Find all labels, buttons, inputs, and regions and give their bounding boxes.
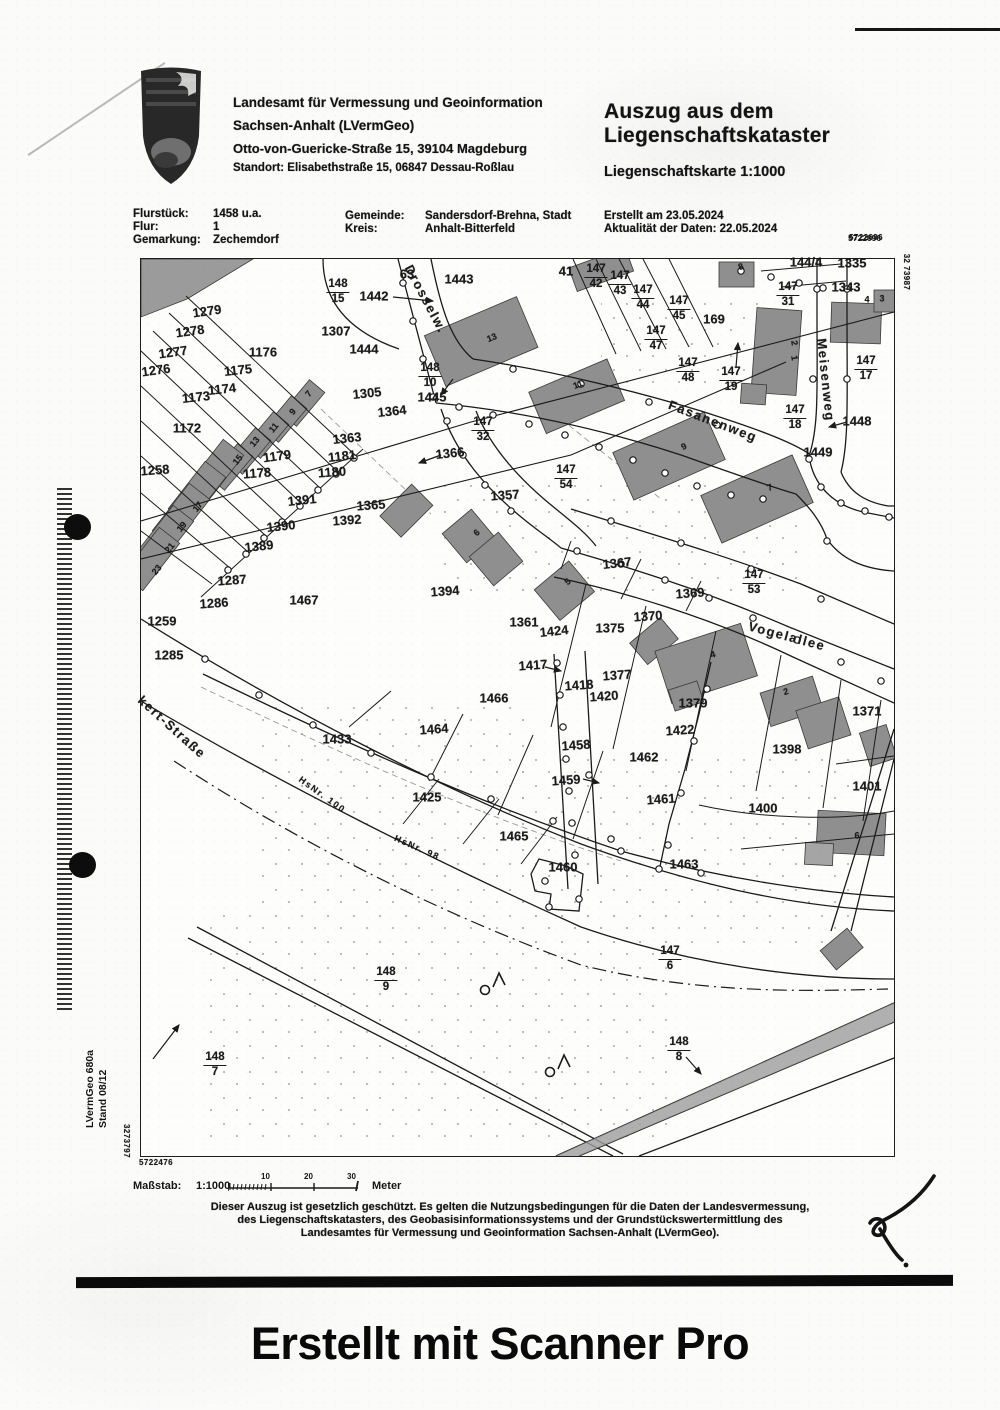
grid-coordinate-label: 32 73987 bbox=[902, 254, 910, 291]
document-subtitle: Liegenschaftskarte 1:1000 bbox=[604, 164, 830, 180]
flurstueck-label: Flurstück: bbox=[133, 208, 213, 221]
punch-hole bbox=[69, 852, 96, 878]
kreis-value: Anhalt-Bitterfeld bbox=[425, 223, 515, 236]
scanner-caption: Erstellt mit Scanner Pro bbox=[0, 1318, 1000, 1370]
scanned-document-page: Landesamt für Vermessung und Geoinformat… bbox=[0, 0, 1000, 1410]
gemeinde-value: Sandersdorf-Brehna, Stadt bbox=[425, 210, 571, 223]
massstab-label: Maßstab: bbox=[133, 1180, 181, 1192]
legal-line1: Dieser Auszug ist gesetzlich geschützt. … bbox=[205, 1201, 815, 1214]
gemarkung-value: Zechemdorf bbox=[213, 234, 279, 247]
legal-line2: des Liegenschaftskatasters, des Geobasis… bbox=[205, 1214, 815, 1227]
cadastral-map bbox=[140, 258, 895, 1157]
coat-of-arms-icon bbox=[138, 64, 204, 190]
scale-bar: 10 20 30 bbox=[228, 1172, 378, 1194]
scale-bar-graphic bbox=[228, 1180, 363, 1192]
scan-edge-mark bbox=[855, 28, 1000, 31]
form-code-vertical: LVermGeo 680a Stand 08/12 bbox=[84, 998, 110, 1128]
ground-stipple bbox=[201, 299, 851, 1149]
legal-notice: Dieser Auszug ist gesetzlich geschützt. … bbox=[205, 1201, 815, 1240]
parcel-metadata: Flurstück:1458 u.a. Flur:1 Gemarkung:Zec… bbox=[133, 208, 279, 247]
doc-number-top: 5722696 bbox=[848, 233, 881, 243]
agency-name-line1: Landesamt für Vermessung und Geoinformat… bbox=[233, 96, 543, 110]
data-currency-date: Aktualität der Daten: 22.05.2024 bbox=[604, 223, 777, 236]
flur-value: 1 bbox=[213, 221, 219, 234]
title-block: Auszug aus dem Liegenschaftskataster Lie… bbox=[604, 100, 830, 180]
municipality-metadata: Gemeinde:Sandersdorf-Brehna, Stadt Kreis… bbox=[345, 210, 571, 236]
grid-coordinate-label: 5722476 bbox=[139, 1159, 173, 1167]
grid-coordinate-label: 3273797 bbox=[122, 1124, 130, 1158]
legal-line3: Landesamtes für Vermessung und Geoinform… bbox=[205, 1227, 815, 1240]
agency-location: Standort: Elisabethstraße 15, 06847 Dess… bbox=[233, 163, 543, 175]
document-title-line2: Liegenschaftskataster bbox=[604, 124, 830, 148]
letterhead: Landesamt für Vermessung und Geoinformat… bbox=[233, 96, 543, 175]
signature-mark bbox=[850, 1170, 950, 1270]
created-date: Erstellt am 23.05.2024 bbox=[604, 210, 777, 223]
agency-address: Otto-von-Guericke-Straße 15, 39104 Magde… bbox=[233, 142, 543, 155]
scan-bottom-bar bbox=[76, 1275, 953, 1288]
gemarkung-label: Gemarkung: bbox=[133, 234, 213, 247]
kreis-label: Kreis: bbox=[345, 223, 425, 236]
agency-name-line2: Sachsen-Anhalt (LVermGeo) bbox=[233, 119, 543, 133]
gemeinde-label: Gemeinde: bbox=[345, 210, 425, 223]
date-metadata: Erstellt am 23.05.2024 Aktualität der Da… bbox=[604, 210, 777, 236]
map-geometry bbox=[141, 259, 894, 1156]
document-title-line1: Auszug aus dem bbox=[604, 100, 830, 124]
flur-label: Flur: bbox=[133, 221, 213, 234]
form-code: LVermGeo 680a bbox=[84, 998, 97, 1128]
scan-edge-barcode bbox=[57, 488, 72, 1012]
flurstueck-value: 1458 u.a. bbox=[213, 208, 262, 221]
form-stand: Stand 08/12 bbox=[97, 998, 110, 1128]
massstab-value: 1:1000 bbox=[196, 1180, 230, 1192]
meter-label: Meter bbox=[372, 1180, 401, 1192]
punch-hole bbox=[64, 514, 91, 540]
